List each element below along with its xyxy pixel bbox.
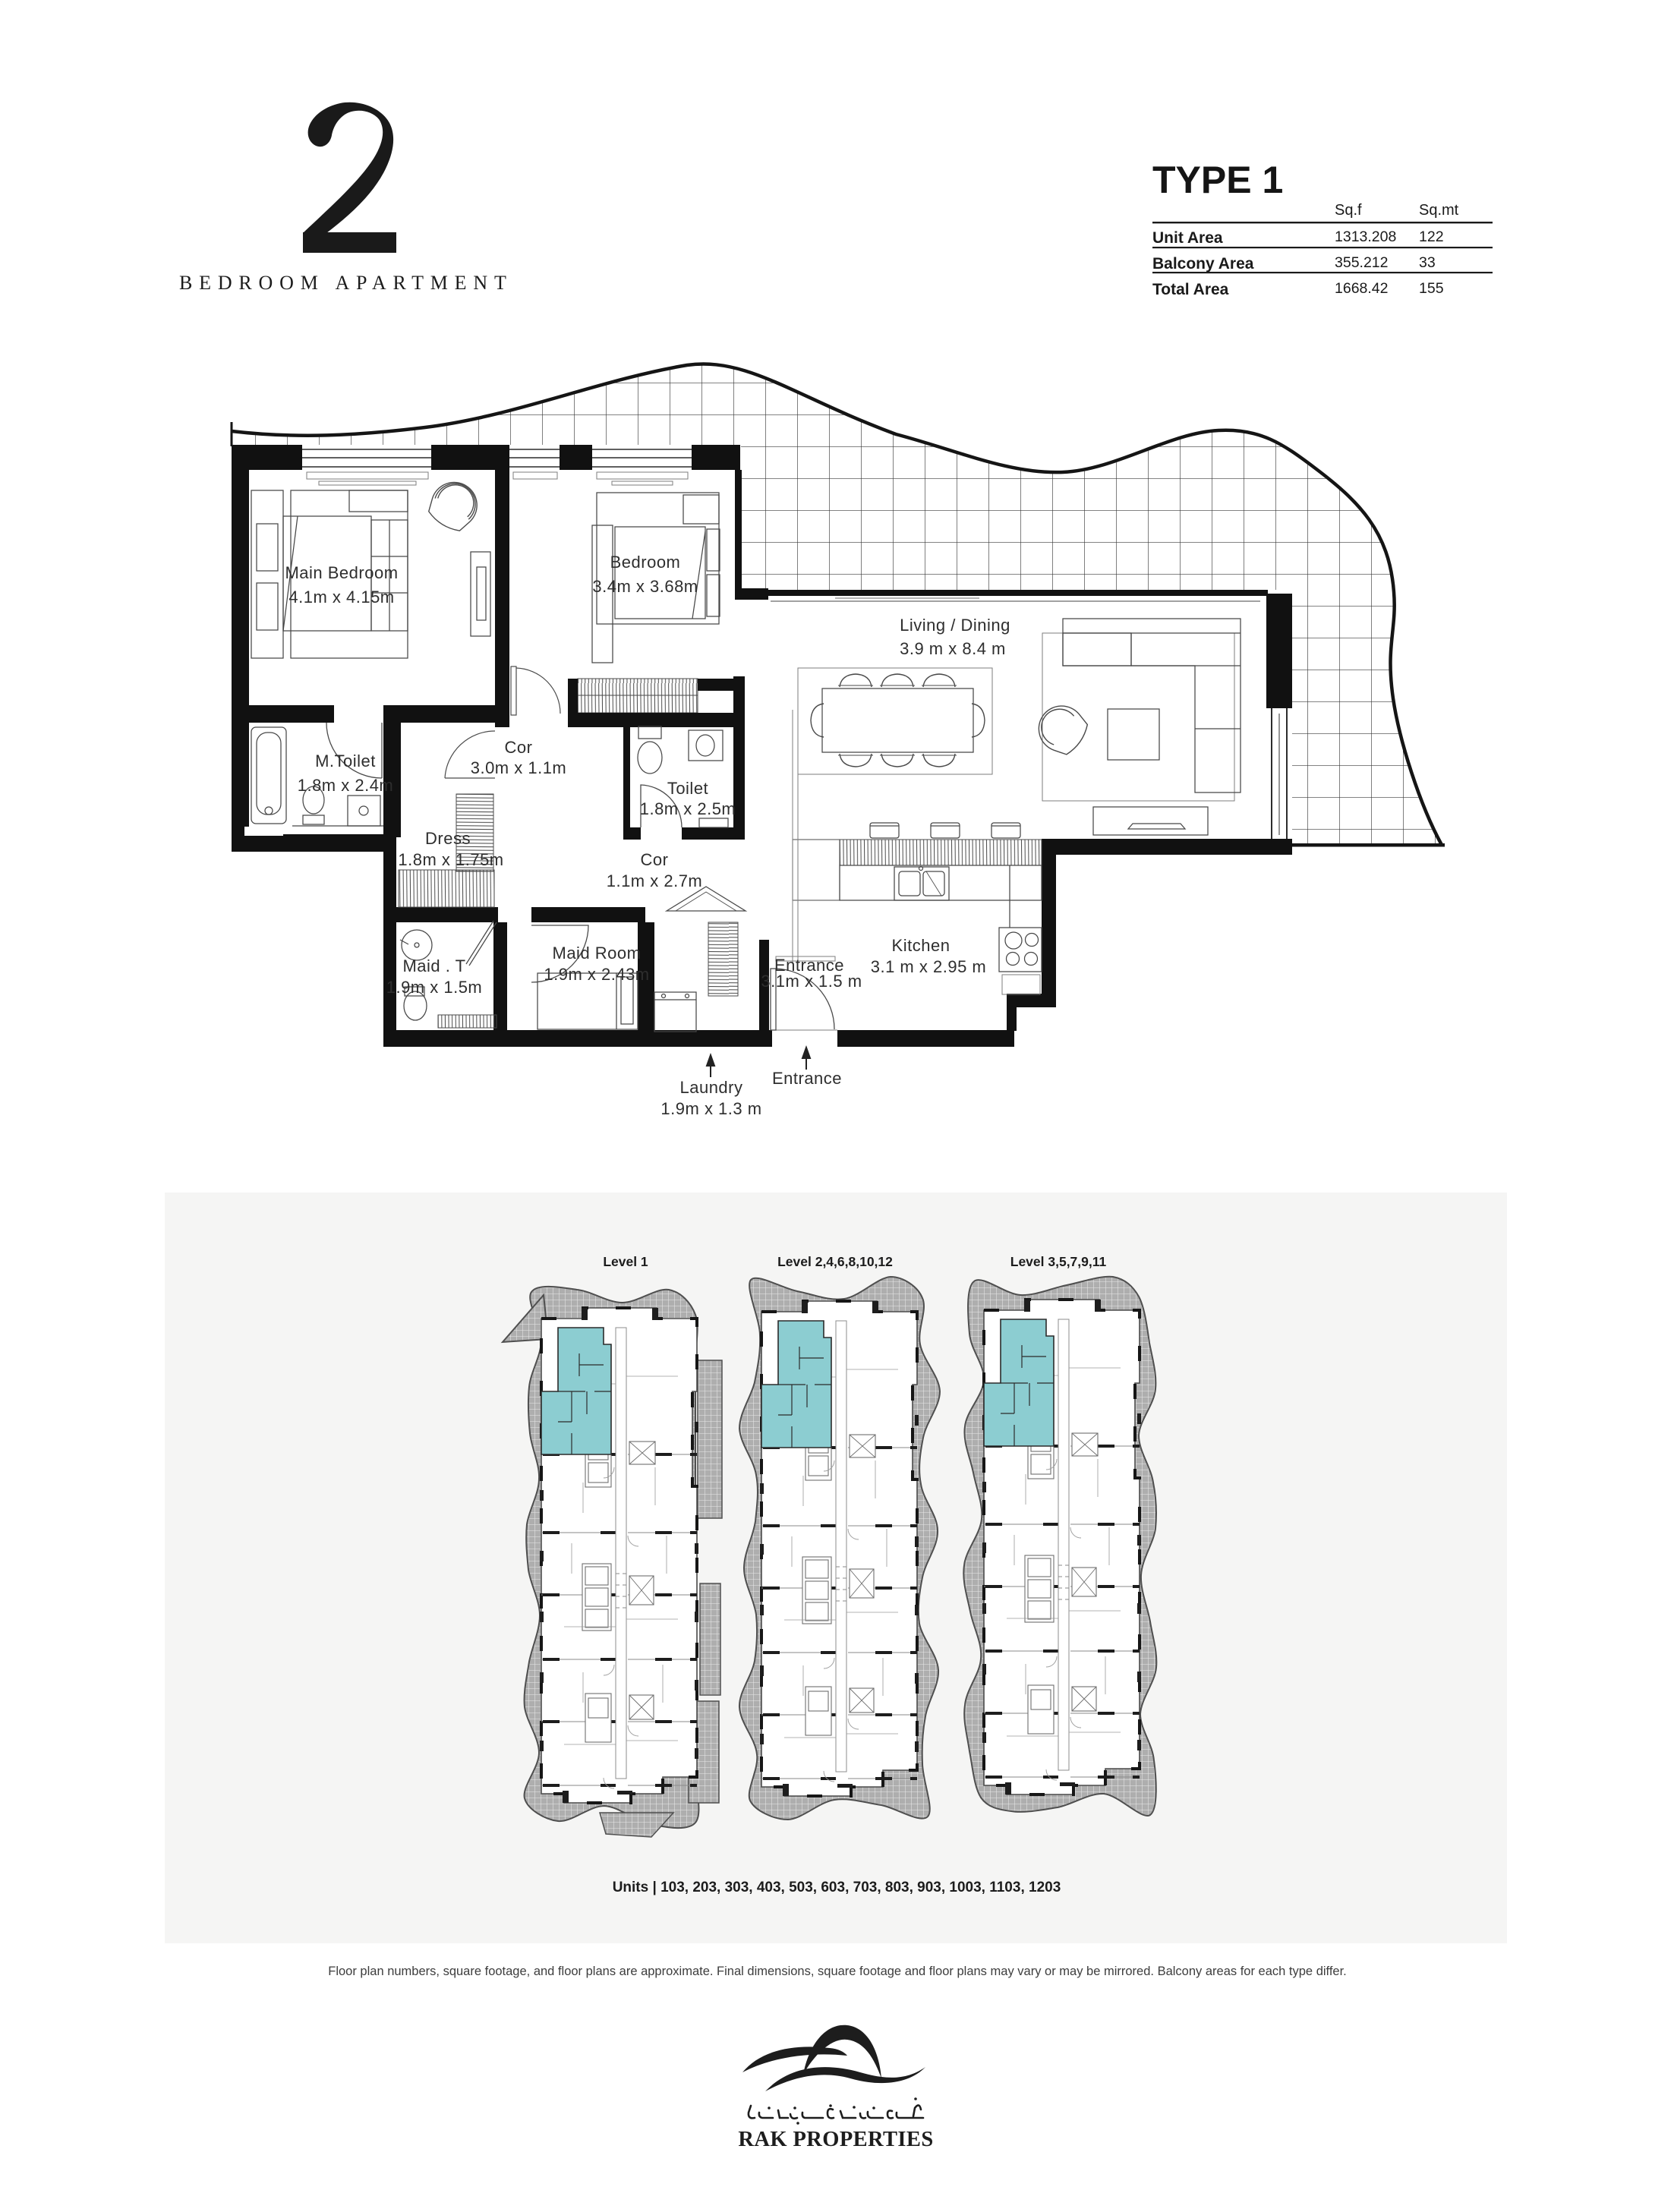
svg-text:Kitchen: Kitchen <box>892 936 950 955</box>
svg-text:Unit Area: Unit Area <box>1152 229 1223 247</box>
svg-text:4.1m x 4.15m: 4.1m x 4.15m <box>288 588 394 607</box>
svg-text:1.9m x 2.43m: 1.9m x 2.43m <box>544 965 649 984</box>
svg-text:Sq.mt: Sq.mt <box>1419 202 1459 219</box>
svg-text:1.8m x 2.5m: 1.8m x 2.5m <box>640 799 736 818</box>
svg-text:1.9m x 1.3 m: 1.9m x 1.3 m <box>660 1099 761 1118</box>
svg-text:Balcony Area: Balcony Area <box>1152 255 1254 273</box>
svg-text:1668.42: 1668.42 <box>1335 280 1389 297</box>
svg-text:Main Bedroom: Main Bedroom <box>285 563 398 582</box>
svg-text:Level 2,4,6,8,10,12: Level 2,4,6,8,10,12 <box>777 1254 893 1269</box>
svg-text:1.1m x 2.7m: 1.1m x 2.7m <box>607 871 703 890</box>
svg-text:1.8m x 2.4m: 1.8m x 2.4m <box>298 776 394 795</box>
svg-text:3.1m x 1.5 m: 3.1m x 1.5 m <box>761 972 862 991</box>
svg-text:Level 1: Level 1 <box>603 1254 648 1269</box>
svg-text:RAK PROPERTIES: RAK PROPERTIES <box>738 2128 933 2151</box>
svg-text:Entrance: Entrance <box>772 1069 842 1088</box>
svg-text:3.0m x 1.1m: 3.0m x 1.1m <box>471 758 567 777</box>
svg-text:Dress: Dress <box>425 829 471 848</box>
svg-text:Floor plan numbers, square foo: Floor plan numbers, square footage, and … <box>328 1965 1347 1978</box>
svg-text:1.8m x 1.75m: 1.8m x 1.75m <box>398 850 503 869</box>
svg-text:TYPE 1: TYPE 1 <box>1152 159 1283 201</box>
svg-text:122: 122 <box>1419 228 1444 245</box>
svg-text:3.1 m x 2.95 m: 3.1 m x 2.95 m <box>871 957 987 976</box>
svg-text:Living / Dining: Living / Dining <box>900 616 1010 635</box>
svg-text:155: 155 <box>1419 280 1444 297</box>
svg-text:Units | 103, 203, 303, 403, 50: Units | 103, 203, 303, 403, 503, 603, 70… <box>613 1880 1061 1895</box>
svg-text:Toilet: Toilet <box>667 779 708 798</box>
svg-text:3.4m x 3.68m: 3.4m x 3.68m <box>592 577 698 596</box>
svg-text:Cor: Cor <box>641 850 669 869</box>
svg-text:Maid Room: Maid Room <box>553 944 642 963</box>
svg-text:355.212: 355.212 <box>1335 254 1389 271</box>
svg-text:BEDROOM APARTMENT: BEDROOM APARTMENT <box>179 272 513 294</box>
svg-text:Level 3,5,7,9,11: Level 3,5,7,9,11 <box>1010 1254 1107 1269</box>
svg-text:3.9 m x 8.4 m: 3.9 m x 8.4 m <box>900 639 1006 658</box>
svg-text:M.Toilet: M.Toilet <box>315 752 376 770</box>
svg-text:Total Area: Total Area <box>1152 281 1229 298</box>
svg-text:1313.208: 1313.208 <box>1335 228 1396 245</box>
svg-text:Cor: Cor <box>505 738 533 757</box>
svg-text:Laundry: Laundry <box>679 1078 742 1097</box>
svg-text:Sq.f: Sq.f <box>1335 202 1362 219</box>
svg-text:1.9m x 1.5m: 1.9m x 1.5m <box>386 978 483 997</box>
svg-text:33: 33 <box>1419 254 1436 271</box>
svg-text:Bedroom: Bedroom <box>610 553 681 572</box>
svg-text:Maid . T: Maid . T <box>402 956 465 975</box>
